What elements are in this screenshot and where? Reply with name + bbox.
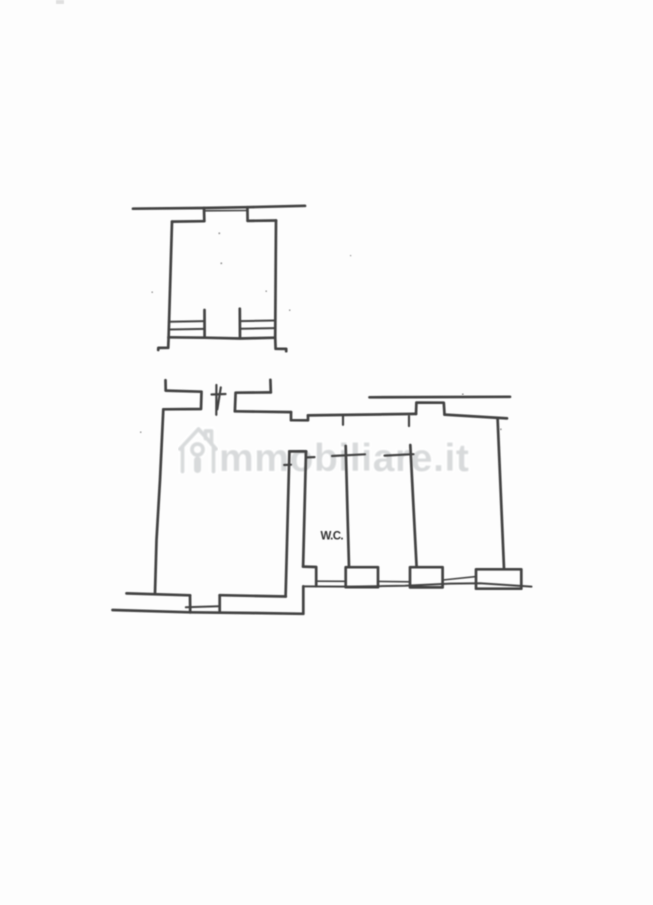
svg-text:mmobiliare.it: mmobiliare.it <box>219 437 470 480</box>
svg-text:W.C.: W.C. <box>321 531 344 543</box>
